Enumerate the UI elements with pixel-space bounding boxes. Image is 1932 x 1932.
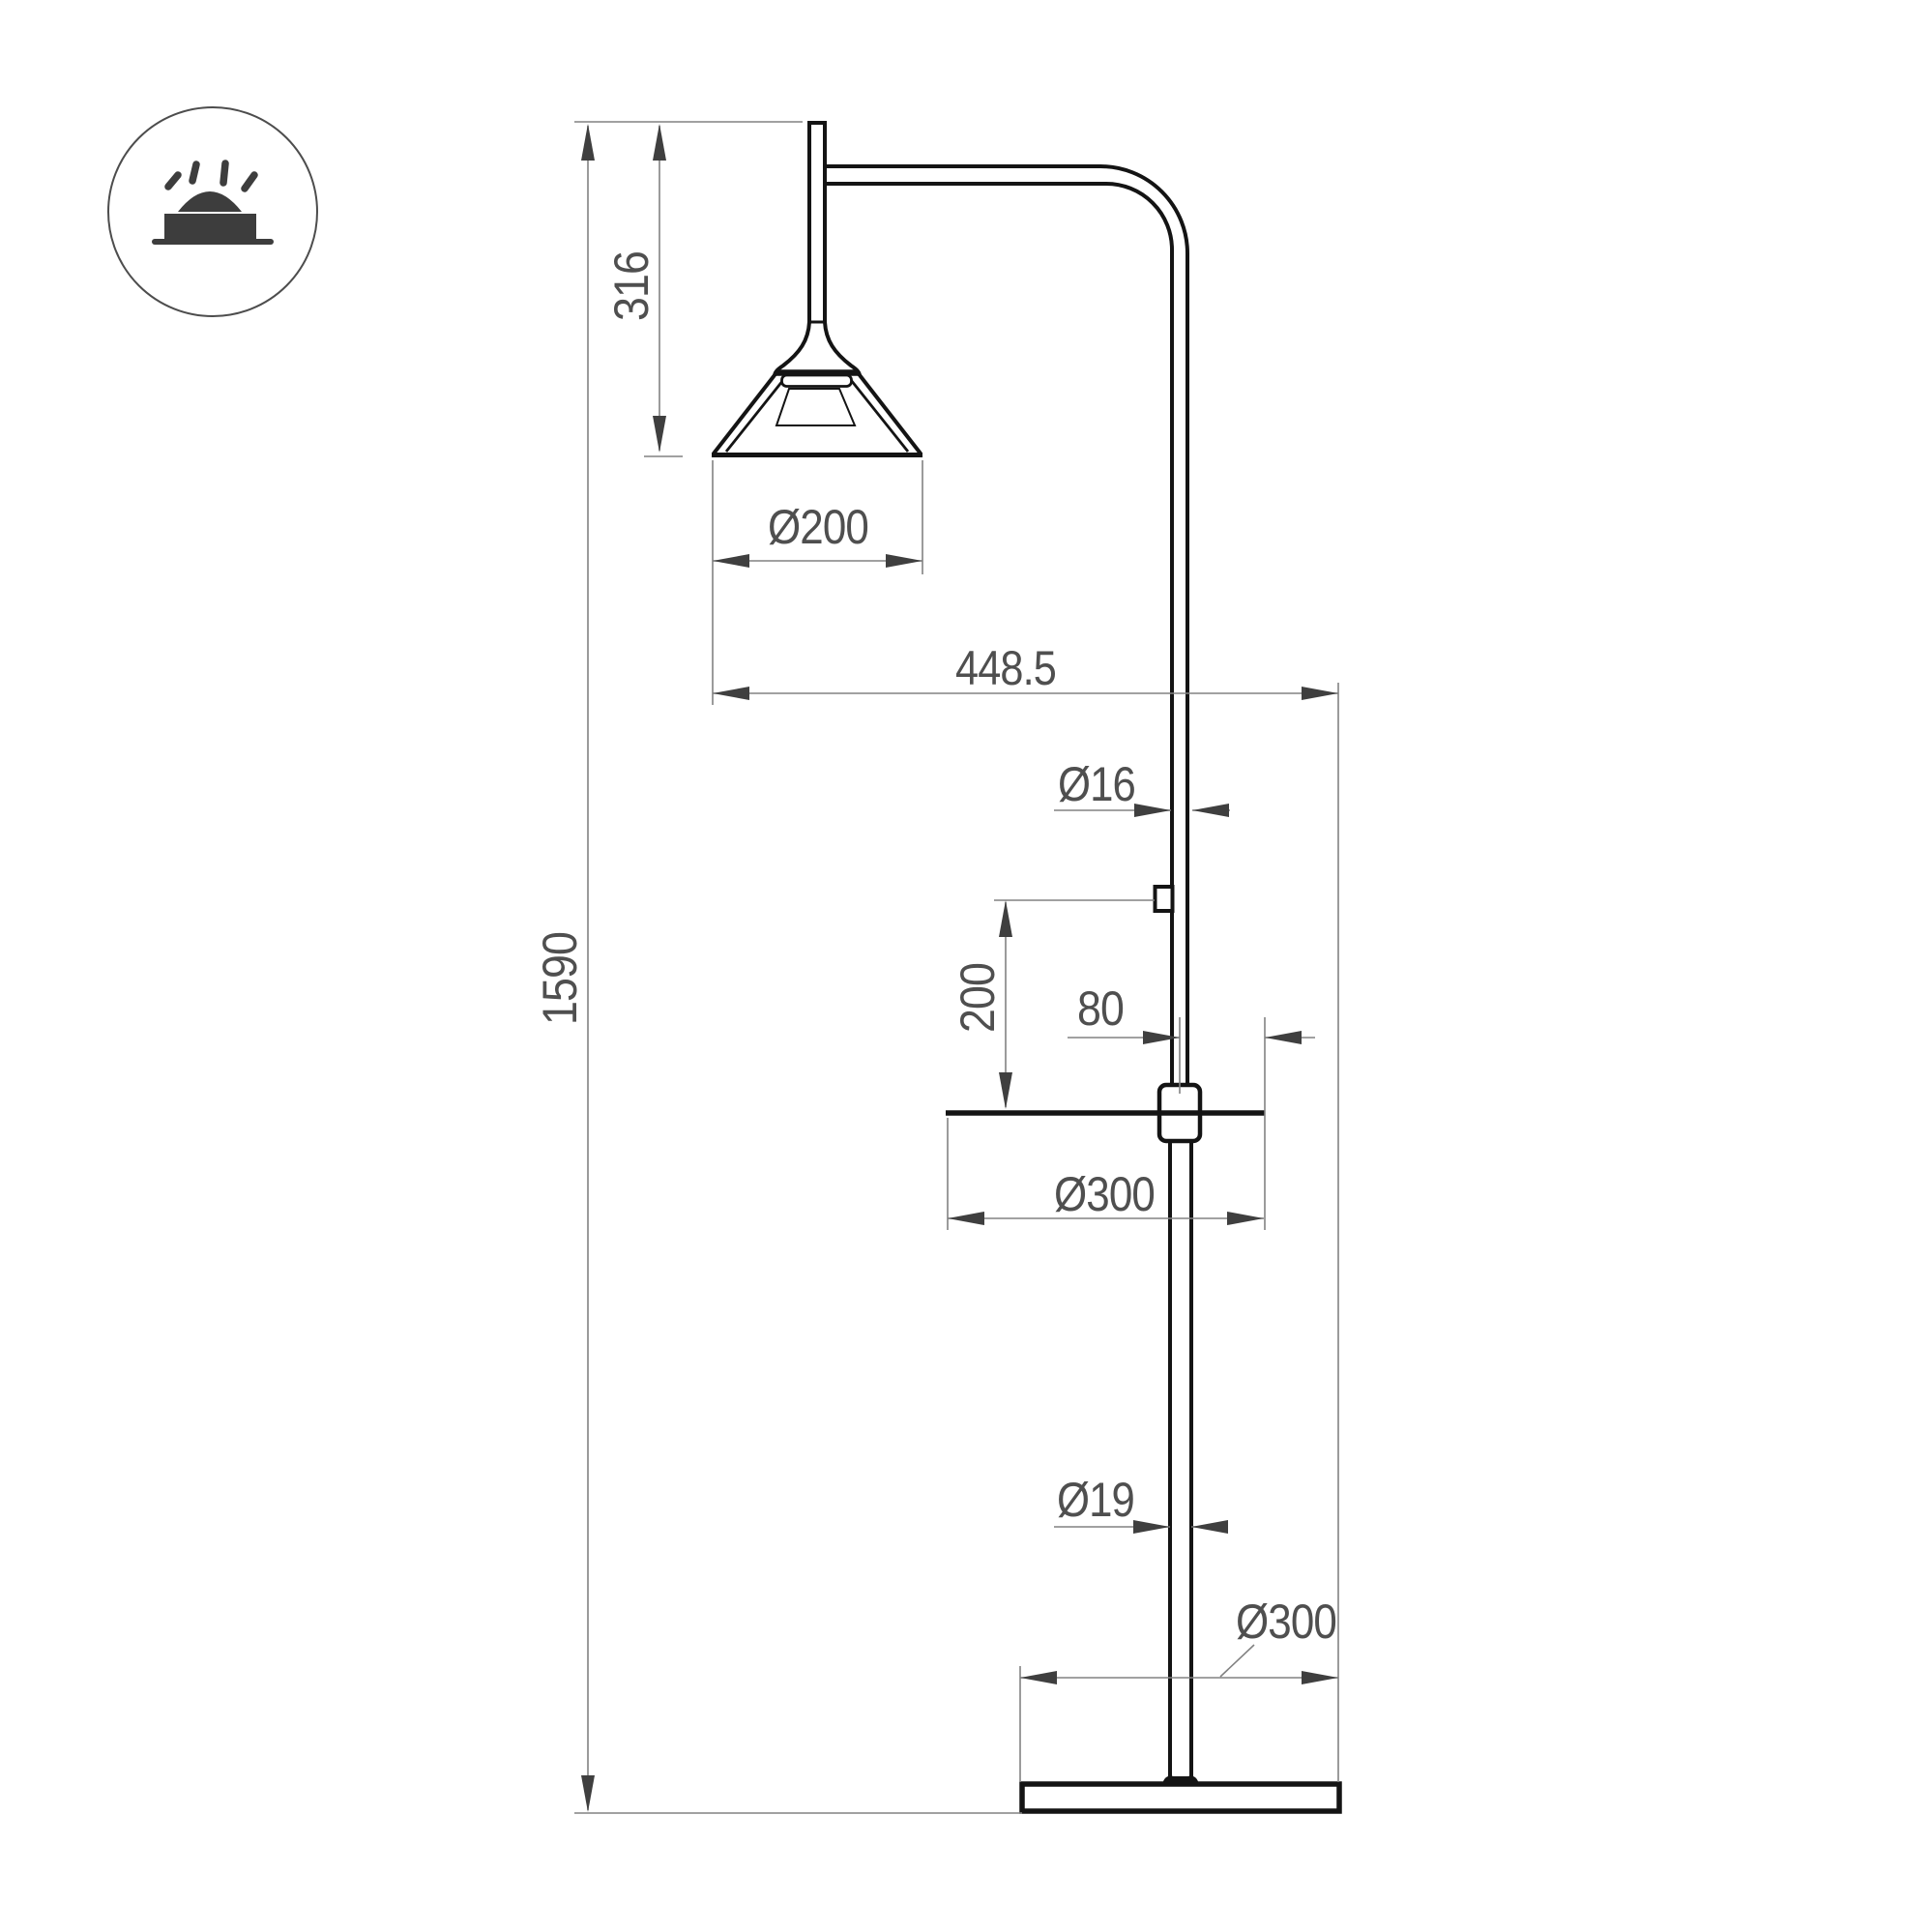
dimension-head-drop: 316 [604, 124, 666, 453]
arrowhead [1191, 1520, 1228, 1534]
drawing-canvas: 1590 316 Ø200 448.5 Ø [0, 0, 1932, 1932]
shade-inner-wall [726, 380, 783, 452]
lamp-stem [807, 121, 827, 322]
arrowhead [653, 124, 666, 161]
dimension-label-shade-diameter: Ø200 [768, 500, 868, 554]
arrowhead [1133, 1520, 1170, 1534]
icon-rays [168, 163, 254, 189]
dimension-projection: 448.5 [713, 641, 1338, 700]
dimension-label-head-drop: 316 [604, 251, 659, 321]
arrowhead [1020, 1671, 1057, 1684]
arrowhead [1265, 1031, 1302, 1044]
arrowhead [1302, 1671, 1338, 1684]
dimension-layer: 1590 316 Ø200 448.5 Ø [533, 122, 1338, 1813]
dimension-table-diameter: Ø300 [948, 1167, 1264, 1225]
arrowhead [999, 900, 1012, 937]
dimension-label-total-height: 1590 [533, 932, 587, 1025]
lamp-arm [827, 166, 1187, 1085]
base-plate [1022, 1784, 1339, 1811]
switch [1156, 887, 1173, 911]
dimension-label-lower-pole-diameter: Ø19 [1057, 1473, 1134, 1527]
arrowhead [886, 554, 922, 568]
light-beam-outline [776, 389, 855, 425]
arrowhead [653, 416, 666, 453]
dimension-label-table-diameter: Ø300 [1054, 1167, 1155, 1221]
arrowhead [999, 1072, 1012, 1109]
arrowhead [1302, 687, 1338, 700]
arrowhead [1192, 804, 1229, 817]
arrowhead [581, 1775, 595, 1812]
lamp-pole-lower [1170, 1141, 1191, 1781]
arrowhead [1134, 804, 1171, 817]
dimension-base-diameter: Ø300 [1020, 1595, 1338, 1684]
dimension-upper-pole-diameter: Ø16 [1054, 757, 1230, 817]
dimension-switch-above-table: 200 [951, 900, 1012, 1109]
leader-line-base-diameter [1220, 1645, 1254, 1677]
led-lens [782, 375, 852, 387]
dimension-table-side-offset: 80 [1068, 981, 1315, 1044]
dimension-label-projection: 448.5 [955, 641, 1056, 695]
shade-inner-wall [851, 380, 908, 452]
dimension-label-base-diameter: Ø300 [1236, 1595, 1336, 1649]
dimension-shade-diameter: Ø200 [713, 500, 922, 568]
arrowhead [948, 1212, 984, 1225]
dimension-total-height: 1590 [533, 124, 595, 1812]
dimension-label-switch-above-table: 200 [951, 963, 1005, 1033]
arrowhead [713, 554, 749, 568]
arrowhead [581, 124, 595, 161]
arrowhead [1143, 1031, 1180, 1044]
dimension-lower-pole-diameter: Ø19 [1054, 1473, 1228, 1534]
dimension-label-table-side-offset: 80 [1077, 981, 1124, 1036]
arrowhead [1227, 1212, 1264, 1225]
lamp-shade [712, 322, 922, 455]
lamp-structure [712, 121, 1339, 1811]
icon-body [164, 214, 256, 242]
dimension-label-upper-pole-diameter: Ø16 [1058, 757, 1135, 811]
icon-base-bar [152, 239, 274, 245]
surface-mounted-light-icon [108, 107, 317, 316]
icon-dome [178, 191, 242, 212]
arrowhead [713, 687, 749, 700]
